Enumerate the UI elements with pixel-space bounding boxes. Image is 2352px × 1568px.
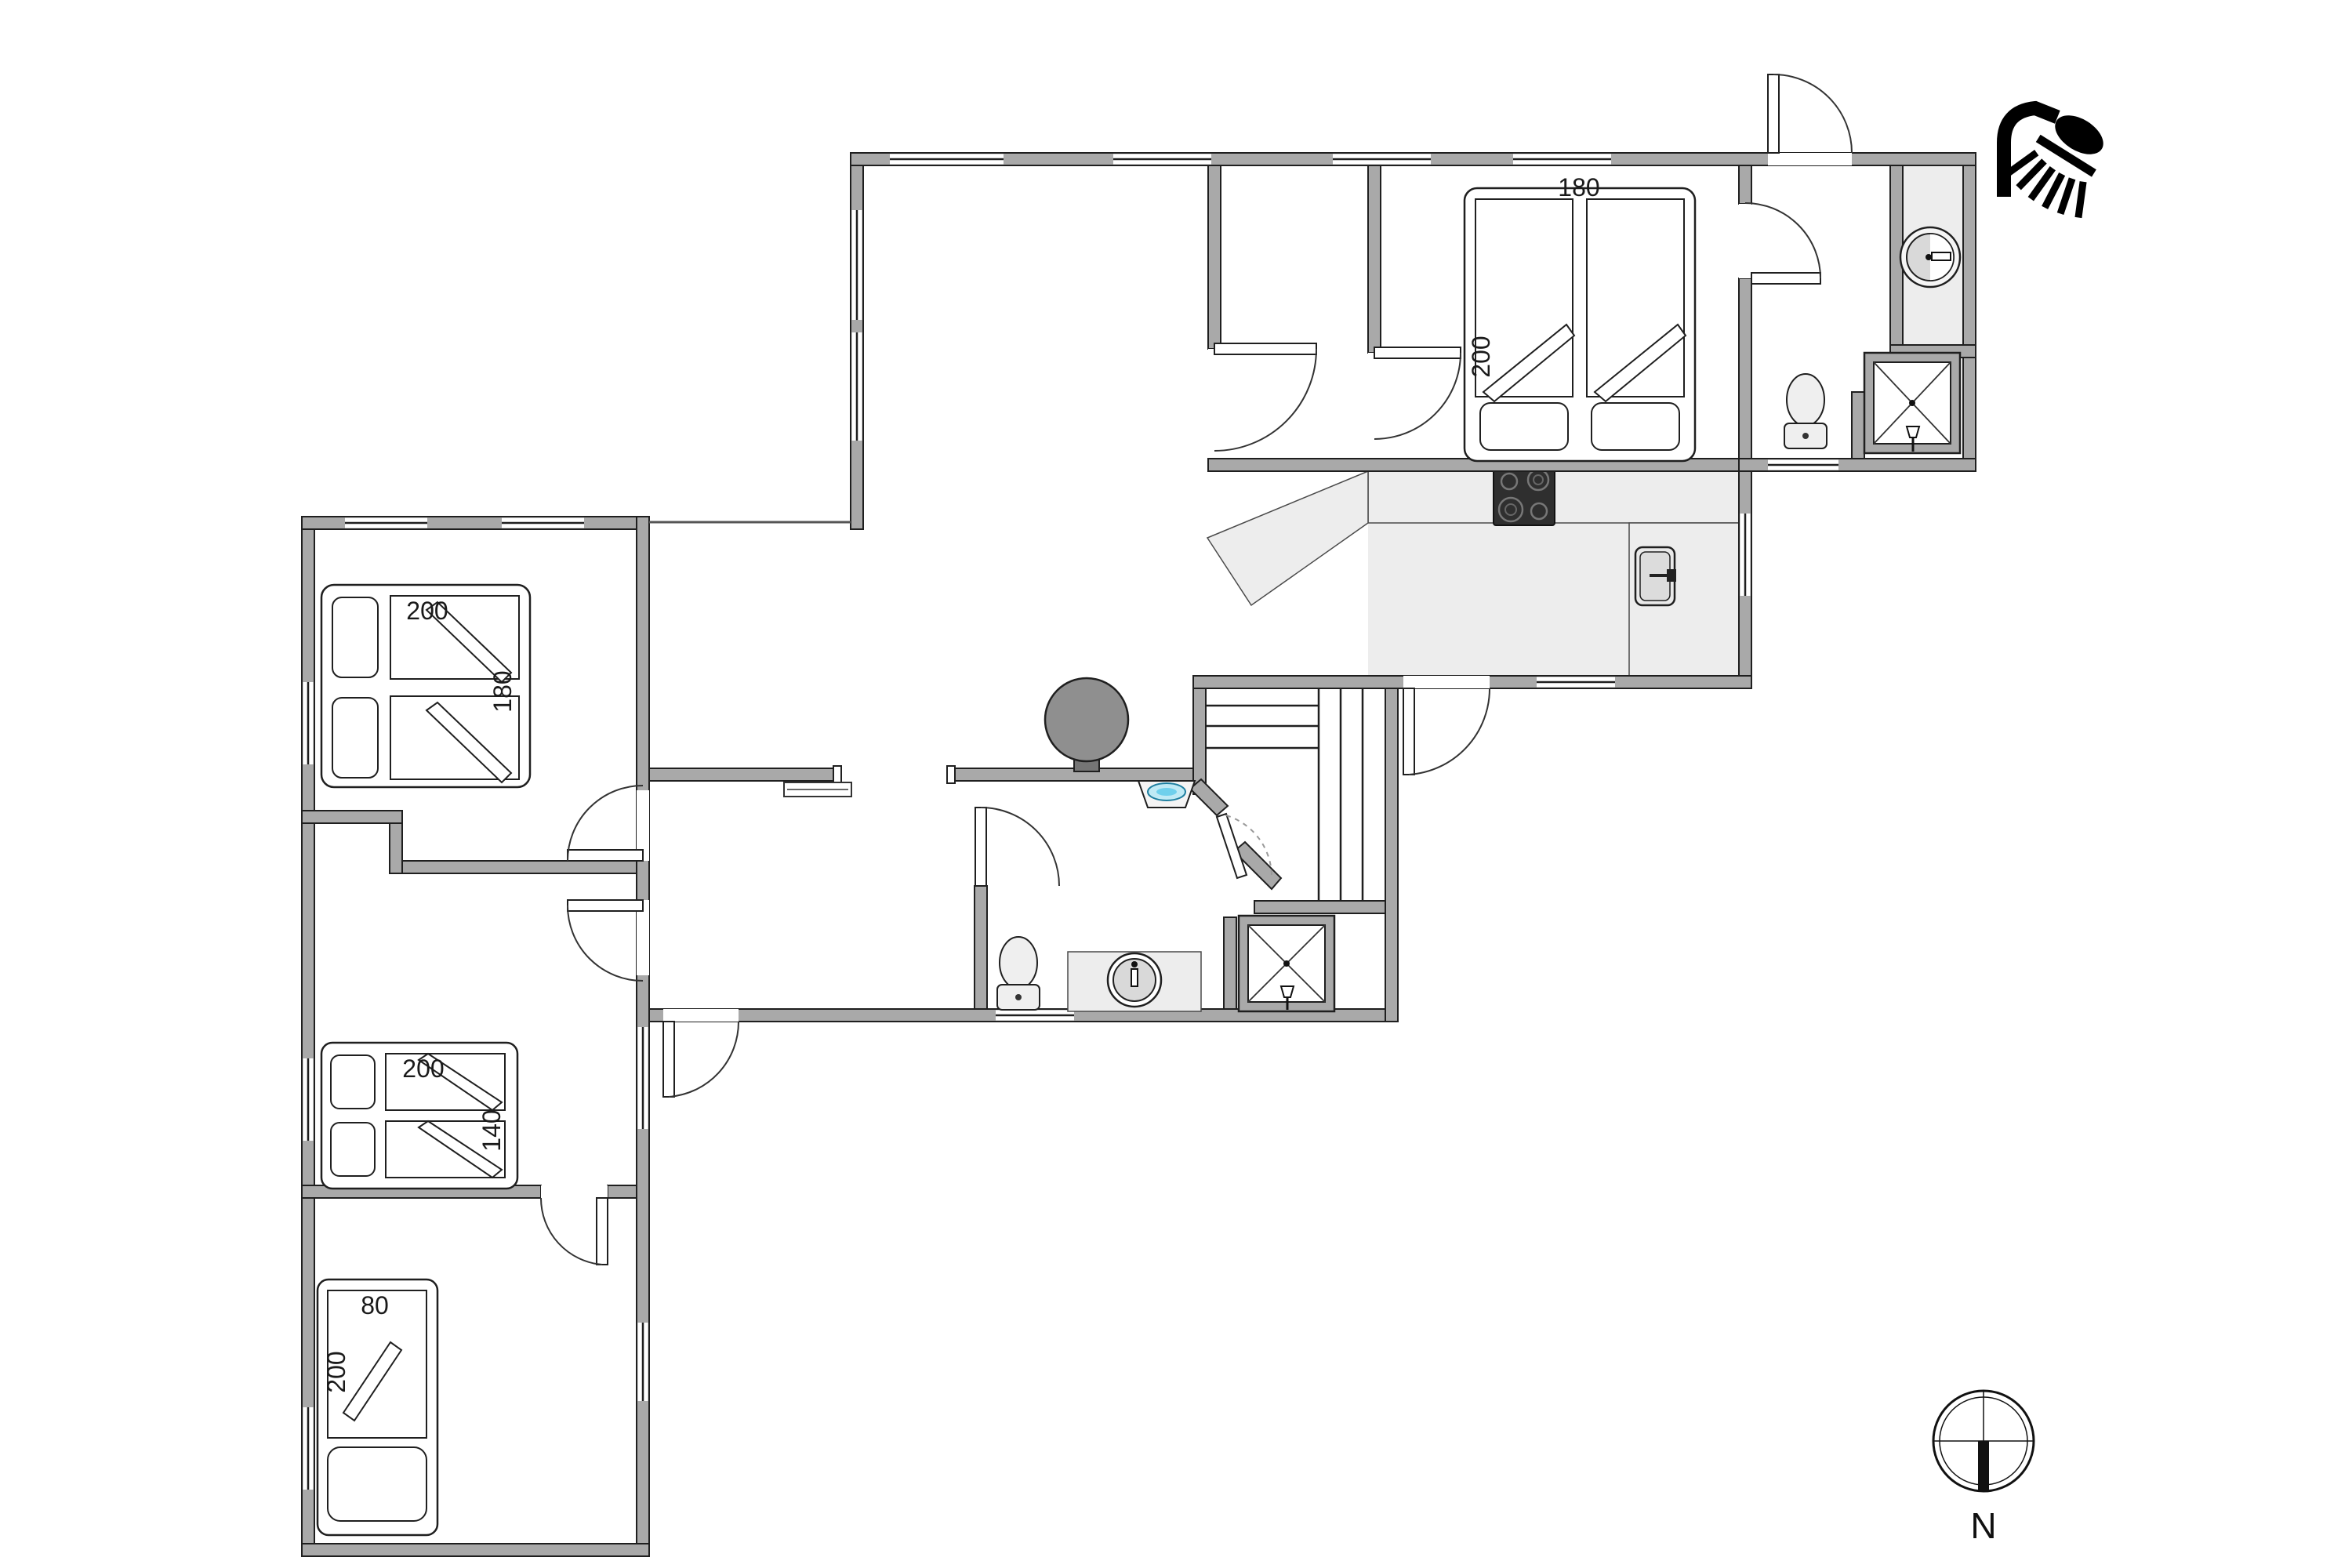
wall-sauna-west [1193,688,1206,794]
wall-east [1963,165,1976,471]
faucet [1131,969,1138,986]
bed-w2-double: 200 140 [321,1043,517,1189]
kitchen-sink [1635,547,1676,605]
pillow [331,1055,375,1109]
window [638,1323,648,1401]
drain [1907,426,1919,437]
wall-bath-west [975,886,987,1009]
bed-w2-length-label: 200 [402,1054,444,1083]
faucet [1932,252,1951,260]
window [852,210,862,320]
bed-w3-single: 80 200 [318,1279,437,1535]
shower [1239,916,1334,1011]
kitchen-faucet [1667,569,1676,582]
window [1768,460,1838,470]
wall-entry-west-1 [1739,165,1751,204]
wall-partition-b [1368,165,1381,353]
jamb-cap [947,766,955,783]
window [1537,677,1615,688]
bed-w3-length-label: 200 [322,1351,350,1392]
pillow [328,1447,426,1521]
window [1113,154,1211,165]
wall-entry-west-2 [1739,278,1751,459]
drain [1281,986,1294,997]
pillow [1592,403,1679,450]
entry-shower [1864,353,1960,453]
bed-w1-length-label: 200 [406,597,448,625]
bed-w1-double: 200 180 [321,585,530,787]
wall-sauna-south [1254,901,1385,913]
wall-hall-north-e [947,768,1193,781]
wall-shower-stub [1224,917,1236,1009]
hall-corner-basin [1138,781,1195,808]
wall-div2-stub [608,1185,637,1198]
wall-div1-b [402,861,637,873]
pillow [1480,403,1568,450]
window [890,154,1004,165]
pillow [332,698,378,778]
jamb-cap [833,766,841,783]
window [345,518,427,528]
wall-div1-a [302,811,402,823]
entry-round-basin [1900,227,1960,287]
wall-left-south [302,1544,649,1556]
wall-left-west [302,517,314,1556]
window [303,1058,314,1141]
bed-w3-width-label: 80 [361,1291,389,1319]
bed-ne-width-label: 180 [1558,173,1599,201]
window [303,682,314,764]
wall-partition-a [1208,165,1221,349]
window [1333,154,1431,165]
bed-w1-width-label: 180 [488,670,517,712]
wall-hall-north-w [649,768,841,781]
bed-ne-double: 180 200 [1465,173,1695,461]
window [502,518,584,528]
floor-plan-canvas: 180 200 200 180 200 140 80 200 [0,0,2352,1568]
window [852,332,862,441]
cooktop-4-burners [1494,464,1555,525]
window [638,1027,648,1129]
window [1513,154,1611,165]
entry-toilet [1784,374,1827,448]
pillow [332,597,378,677]
window [303,1407,314,1490]
wood-stove [1045,678,1128,761]
wall-sauna-east [1385,688,1398,1022]
pillow [331,1123,375,1176]
bed-w2-width-label: 140 [477,1109,506,1151]
sink-counter [1068,952,1201,1011]
wall-div1-jog [390,823,402,873]
toilet [997,937,1040,1010]
window [1740,514,1751,596]
wall-entry-shower-stub [1852,392,1864,459]
window [996,1011,1074,1021]
compass-label: N [1970,1505,1996,1546]
compass-needle [1978,1441,1989,1491]
bed-ne-length-label: 200 [1467,336,1495,377]
